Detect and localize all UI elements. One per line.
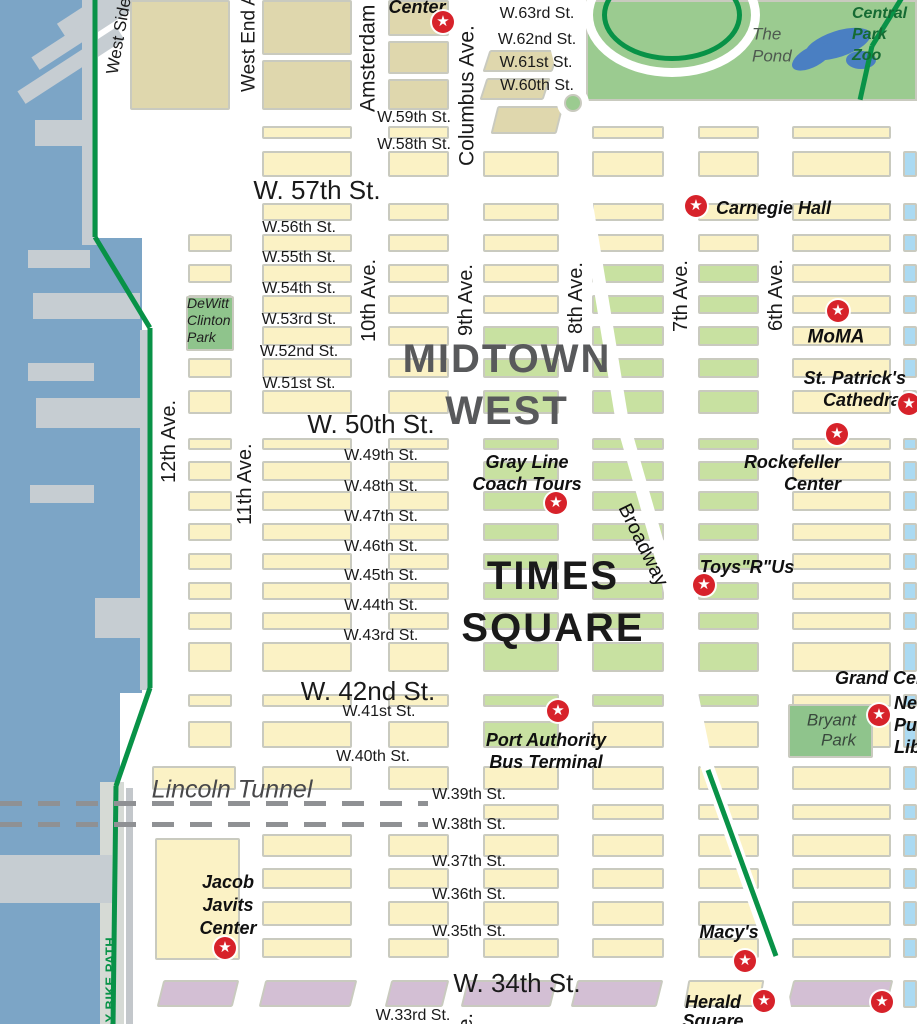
city-block [592,834,664,857]
city-block [698,358,759,378]
city-block [262,612,352,630]
greenway-bike-path-line [148,328,153,688]
avenue-label: 6th Ave. [766,259,786,331]
city-block [483,203,559,221]
herald-square-label: Square [682,1012,743,1024]
city-block [903,295,917,314]
nyc-midtown-street-map: W.63rd St.W.62nd St.W.61st St.W.60th St.… [0,0,917,1024]
greenway-bike-path-line [93,0,98,237]
city-block [388,721,449,748]
district-midtown-west-label: WEST [445,391,569,431]
central-park-zoo-label: Park [852,27,887,43]
city-block [483,295,559,314]
moma-star-icon: ★ [827,300,849,322]
avenue-label: 7th Ave. [671,260,691,332]
bryant-park-label: Park [821,732,856,749]
street-label: W.48th St. [344,479,418,495]
street-label: W.62nd St. [498,32,576,48]
city-block [698,491,759,511]
city-block [903,834,917,857]
avenue-label: West End Ave. [240,0,259,92]
city-block [792,553,891,570]
city-block [903,234,917,252]
gray-line-coach-tours-label: Gray Line [485,453,568,471]
city-block [698,264,759,283]
city-block [188,390,232,414]
street-label: W.56th St. [262,220,336,236]
city-block [792,523,891,541]
pier [35,120,90,146]
city-block [792,612,891,630]
city-block [262,151,352,177]
city-block [903,491,917,511]
rockefeller-center-label: Center [784,475,841,493]
city-block [903,766,917,790]
city-block [188,523,232,541]
city-block [698,326,759,346]
city-block [188,694,232,707]
city-block [903,804,917,820]
street-label: W.54th St. [262,281,336,297]
city-block [188,461,232,481]
city-block [903,980,917,1008]
central-park-zoo-label: Zoo [852,48,881,64]
city-block [903,523,917,541]
city-block [592,203,664,221]
city-block [262,868,352,889]
city-block [592,901,664,926]
city-block [698,126,759,139]
macys-label: Macy's [699,923,758,941]
city-block [792,151,891,177]
city-block [388,264,449,283]
city-block [698,438,759,450]
city-block [592,694,664,707]
city-block [262,523,352,541]
street-label: W.55th St. [262,250,336,266]
city-block [903,264,917,283]
city-block-tan [130,0,230,110]
city-block [188,438,232,450]
city-block [592,804,664,820]
pier [28,363,94,381]
city-block [698,390,759,414]
city-block [698,295,759,314]
street-label: W.41st St. [343,704,416,720]
pier [0,855,112,903]
city-block [188,612,232,630]
gray-line-coach-tours-label: Coach Tours [472,475,581,493]
city-block [262,491,352,511]
the-pond-label: Pond [752,48,792,65]
city-block [903,326,917,346]
avenue-label: 12th Ave. [159,400,179,483]
city-block [262,582,352,600]
district-midtown-west-label: MIDTOWN [403,339,612,379]
city-block-tan [388,41,449,74]
city-block [903,438,917,450]
the-pond-label: The [752,26,781,43]
city-block [262,126,352,139]
city-block [262,438,352,450]
central-park-zoo-label: Central [852,6,907,22]
street-label: W.52nd St. [260,344,338,360]
city-block [592,390,664,414]
city-block-purple [571,980,664,1007]
columbus-circle [564,94,582,112]
street-label: W.63rd St. [500,6,575,22]
city-block [903,461,917,481]
street-label: W.39th St. [432,787,506,803]
city-block [903,582,917,600]
st-patricks-cathedral-label: St. Patrick's [804,369,906,387]
city-block [483,438,559,450]
street-label: W.44th St. [344,598,418,614]
city-block [792,126,891,139]
city-block [792,491,891,511]
city-block [262,901,352,926]
city-block [698,151,759,177]
jacob-javits-center-label: Center [199,919,256,937]
dewitt-clinton-park-label: Clinton [187,313,231,327]
lincoln-center-star-icon: ★ [432,11,454,33]
street-label: W.47th St. [344,509,418,525]
city-block [903,203,917,221]
city-block [903,553,917,570]
jacob-javits-center-star-icon: ★ [214,937,236,959]
port-authority-bus-terminal-label: Port Authority [486,731,606,749]
city-block [698,694,759,707]
avenue-label: GREENWAY BIKE PATH [104,937,117,1024]
st-patricks-cathedral-label: Cathedral [823,391,906,409]
city-block [188,582,232,600]
city-block [188,642,232,672]
new-york-public-library-star-icon: ★ [868,704,890,726]
street-label: W. 42nd St. [301,678,435,704]
empire-state-marker-star-icon: ★ [871,991,893,1013]
city-block [592,868,664,889]
city-block [792,938,891,958]
city-block [483,234,559,252]
street-label: W. 34th St. [453,970,580,996]
port-authority-bus-terminal-star-icon: ★ [547,700,569,722]
street-label: W.58th St. [377,137,451,153]
street-label: W.36th St. [432,887,506,903]
new-york-public-library-label: New York [894,694,917,712]
city-block [262,938,352,958]
city-block [592,766,664,790]
street-label: W.46th St. [344,539,418,555]
city-block [483,938,559,958]
street-label: W.33rd St. [376,1008,451,1024]
city-block-tan [491,106,564,134]
city-block [388,295,449,314]
city-block [792,901,891,926]
city-block [592,938,664,958]
city-block [188,264,232,283]
city-block [188,491,232,511]
avenue-label: 9th Ave. [456,264,476,336]
street-label: W. 50th St. [307,411,434,437]
rockefeller-center-star-icon: ★ [826,423,848,445]
herald-square-label: Herald [685,993,741,1011]
herald-square-star-icon: ★ [753,990,775,1012]
jacob-javits-center-label: Jacob [202,873,254,891]
street-label: W.37th St. [432,854,506,870]
macys-star-icon: ★ [734,950,756,972]
city-block-purple [157,980,240,1007]
moma-label: MoMA [808,328,865,347]
city-block [903,938,917,958]
avenue-label: Columbus Ave. [457,25,478,166]
city-block [698,523,759,541]
city-block [188,721,232,748]
city-block [388,234,449,252]
city-block [188,358,232,378]
street-label: W.40th St. [336,749,410,765]
street-label: W.49th St. [344,448,418,464]
pier [95,598,150,638]
street-label: W.53rd St. [262,312,337,328]
lincoln-tunnel-dashed-line [0,822,428,827]
city-block [903,612,917,630]
city-block [262,721,352,748]
district-times-square-label: TIMES [487,556,619,596]
city-block [188,234,232,252]
city-block [698,612,759,630]
city-block [792,834,891,857]
new-york-public-library-label: Library [894,738,917,756]
city-block [792,868,891,889]
city-block [903,151,917,177]
street-label: W.43rd St. [344,628,419,644]
bryant-park-label: Bryant [807,712,856,729]
city-block [903,901,917,926]
port-authority-bus-terminal-label: Bus Terminal [489,753,602,771]
street-label: W.59th St. [377,110,451,126]
gray-line-coach-tours-star-icon: ★ [545,492,567,514]
city-block [592,151,664,177]
dewitt-clinton-park-label: Park [187,330,216,344]
new-york-public-library-label: Public [894,716,917,734]
street-label: W.38th St. [432,817,506,833]
street-label: W.45th St. [344,568,418,584]
city-block [792,582,891,600]
city-block [698,642,759,672]
city-block [262,553,352,570]
avenue-label: Amsterdam Ave. [358,0,379,112]
avenue-label: 8th Ave. [566,262,586,334]
city-block [262,834,352,857]
city-block [483,264,559,283]
pier [28,250,90,268]
toys-r-us-label: Toys"R"Us [700,558,794,576]
city-block [792,766,891,790]
city-block [698,234,759,252]
city-block-tan [262,60,352,110]
city-block-purple [385,980,450,1007]
city-block [792,804,891,820]
avenue-label: 11th Ave. [235,443,255,525]
district-times-square-label: SQUARE [461,608,644,648]
city-block [483,523,559,541]
city-block-tan [388,79,449,110]
city-block [592,126,664,139]
city-block [262,461,352,481]
city-block [792,264,891,283]
carnegie-hall-star-icon: ★ [685,195,707,217]
city-block [792,234,891,252]
street-label: W.51st St. [263,376,336,392]
grand-central-label: Grand Central [835,669,917,687]
pier [30,485,94,503]
city-block [592,234,664,252]
city-block [483,151,559,177]
street-label: W.61st St. [500,55,573,71]
city-block [388,203,449,221]
city-block [903,868,917,889]
city-block-purple [259,980,358,1007]
city-block [262,642,352,672]
avenue-label: 9th Ave. [456,1013,476,1024]
rockefeller-center-label: Rockefeller [744,453,841,471]
city-block [388,642,449,672]
street-label: W.60th St. [500,78,574,94]
city-block [388,938,449,958]
avenue-label: 10th Ave. [359,259,379,342]
hudson-river-water [0,688,120,793]
jacob-javits-center-label: Javits [202,896,253,914]
pier [36,398,148,428]
carnegie-hall-label: Carnegie Hall [716,199,831,217]
city-block [188,553,232,570]
st-patricks-cathedral-star-icon: ★ [898,393,917,415]
street-label: W. 57th St. [253,177,380,203]
street-label: W.35th St. [432,924,506,940]
dewitt-clinton-park-label: DeWitt [187,296,229,310]
lincoln-tunnel-label: Lincoln Tunnel [152,778,313,803]
pier [33,293,140,319]
city-block-tan [262,0,352,55]
city-block [388,151,449,177]
toys-r-us-star-icon: ★ [693,574,715,596]
